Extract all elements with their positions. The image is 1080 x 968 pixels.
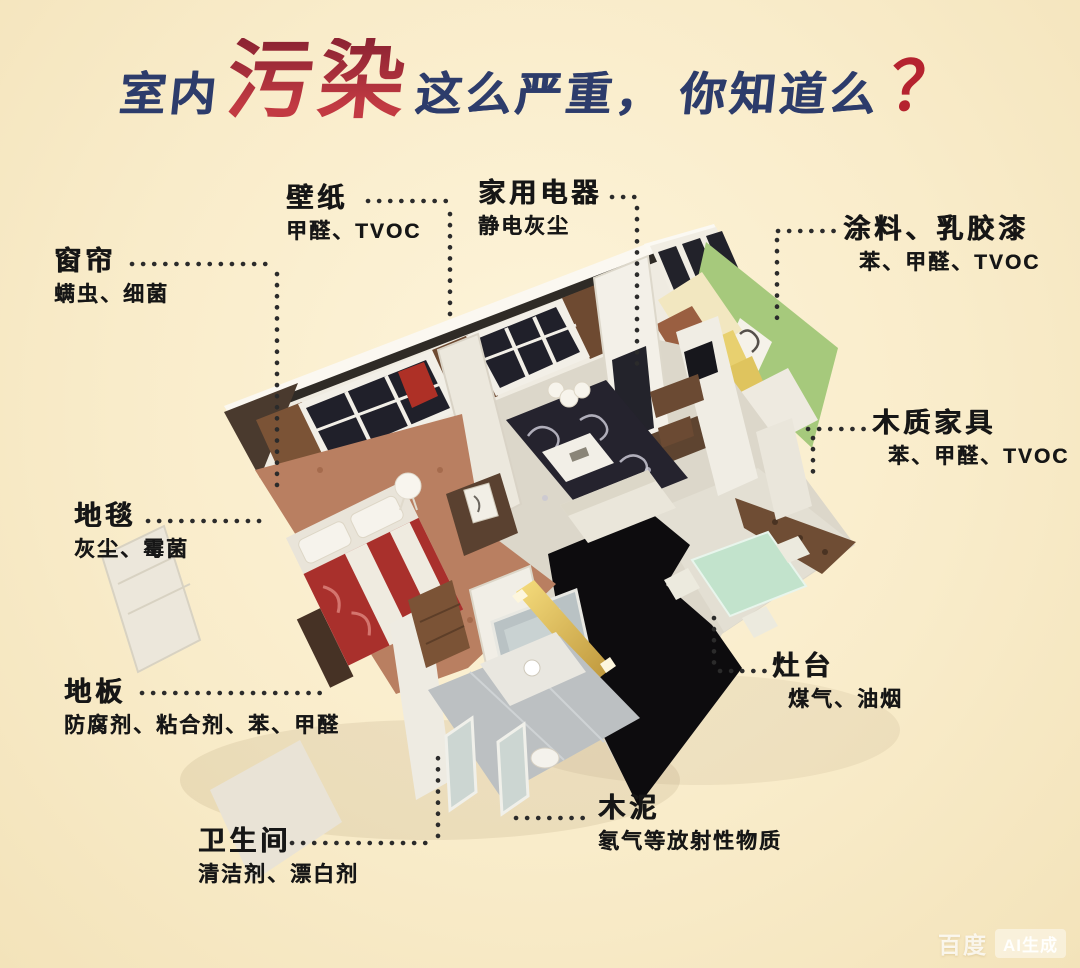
callout-carpet-pollutants: 灰尘、霉菌: [74, 538, 189, 562]
callout-carpet-name: 地毯: [74, 501, 189, 532]
callout-bathroom: 卫生间 清洁剂、漂白剂: [198, 826, 359, 887]
callout-furniture-name: 木质家具: [872, 408, 1069, 439]
callout-cement-name: 木泥: [598, 793, 782, 824]
callout-cement: 木泥 氡气等放射性物质: [598, 793, 782, 854]
title-question-mark: ？: [887, 53, 962, 121]
callout-bathroom-name: 卫生间: [198, 826, 359, 857]
callout-paint-name: 涂料、乳胶漆: [843, 214, 1040, 245]
callout-floor-pollutants: 防腐剂、粘合剂、苯、甲醛: [64, 714, 340, 738]
callout-wallpaper: 壁纸 甲醛、TVOC: [286, 183, 421, 244]
watermark-brand: 百度: [938, 926, 988, 960]
callout-appliance-name: 家用电器: [478, 178, 602, 209]
title-highlight: 污染: [222, 38, 415, 124]
apartment-render: [0, 0, 1080, 968]
callout-wallpaper-pollutants: 甲醛、TVOC: [286, 220, 421, 244]
callout-appliance-pollutants: 静电灰尘: [478, 215, 602, 239]
watermark-badge: AI生成: [995, 929, 1066, 958]
callout-stove: 灶台 煤气、油烟: [772, 651, 903, 712]
infographic-canvas: 室内 污染 这么严重， 你知道么 ？ 壁纸 甲醛、TVOC 家用电器 静电灰尘 …: [0, 0, 1080, 968]
title-part3: 你知道么: [676, 58, 883, 124]
callout-curtain-name: 窗帘: [54, 246, 169, 277]
callout-bathroom-pollutants: 清洁剂、漂白剂: [198, 863, 359, 887]
callout-paint-pollutants: 苯、甲醛、TVOC: [843, 251, 1040, 275]
callout-floor: 地板 防腐剂、粘合剂、苯、甲醛: [64, 677, 340, 738]
callout-wallpaper-name: 壁纸: [286, 183, 421, 214]
title-part1: 室内: [116, 58, 223, 124]
callout-floor-name: 地板: [64, 677, 340, 708]
callout-carpet: 地毯 灰尘、霉菌: [74, 501, 189, 562]
callout-furniture-pollutants: 苯、甲醛、TVOC: [872, 445, 1069, 469]
watermark: 百度 AI生成: [938, 926, 1066, 960]
callout-curtain-pollutants: 螨虫、细菌: [54, 283, 169, 307]
title-part2: 这么严重，: [412, 58, 669, 124]
callout-paint: 涂料、乳胶漆 苯、甲醛、TVOC: [843, 214, 1040, 275]
callout-stove-pollutants: 煤气、油烟: [772, 688, 903, 712]
callout-appliance: 家用电器 静电灰尘: [478, 178, 602, 239]
callout-stove-name: 灶台: [772, 651, 903, 682]
callout-cement-pollutants: 氡气等放射性物质: [598, 830, 782, 854]
callout-furniture: 木质家具 苯、甲醛、TVOC: [872, 408, 1069, 469]
callout-curtain: 窗帘 螨虫、细菌: [54, 246, 169, 307]
page-title: 室内 污染 这么严重， 你知道么 ？: [0, 38, 1080, 124]
